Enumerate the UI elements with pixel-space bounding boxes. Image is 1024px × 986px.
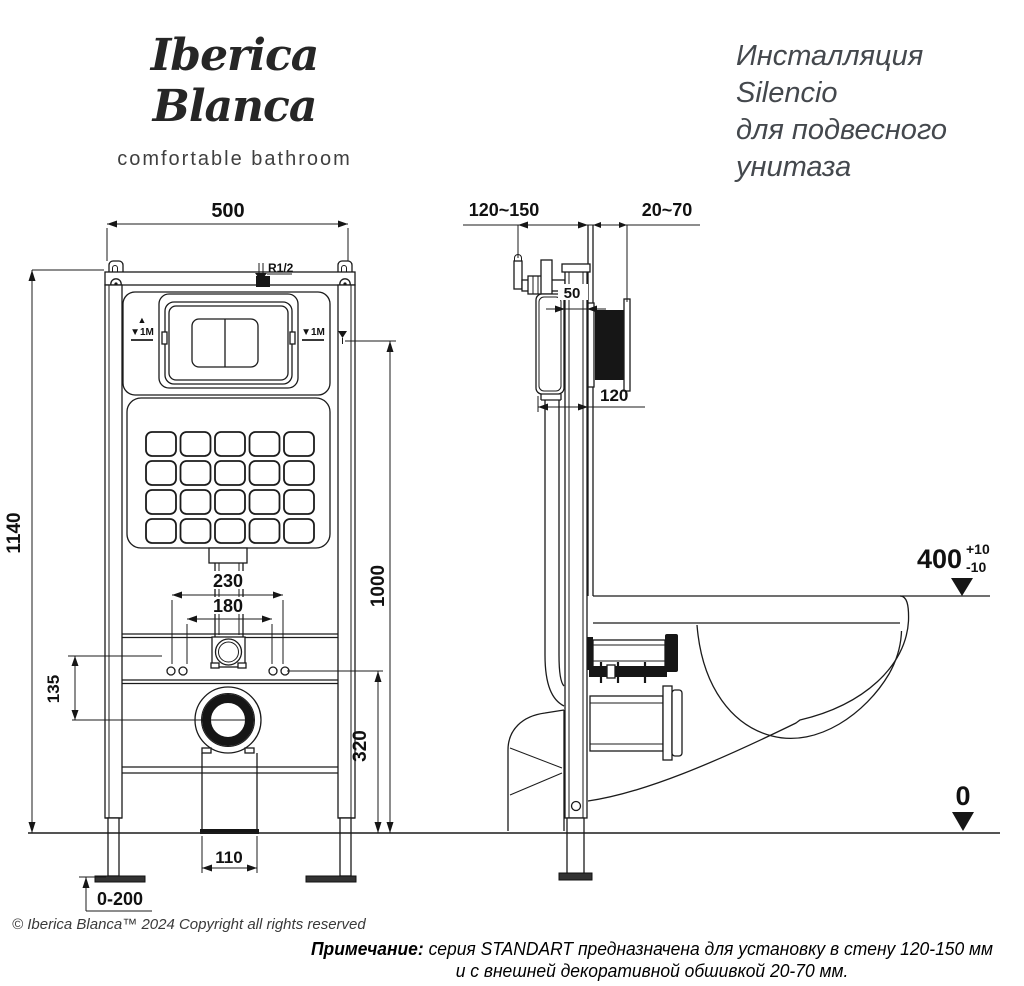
flush-connector: [590, 686, 682, 760]
note-text1: серия STANDART предназначена для установ…: [424, 939, 993, 959]
dim-drain-axis-height: 320: [350, 730, 371, 762]
dim-stud-centers: 180: [213, 596, 243, 616]
dim-front-width: 500: [211, 200, 244, 222]
dim-mark-height: 1000: [368, 565, 389, 607]
installation-note: Примечание: серия STANDART предназначена…: [291, 938, 1013, 982]
dim-pipe-centers: 230: [213, 571, 243, 591]
dim-drain-box-width: 110: [215, 848, 242, 867]
dim-foot-adjust: 0-200: [97, 889, 143, 909]
dim-rim-tol-plus: +10: [966, 541, 990, 557]
dim-front-height: 1140: [4, 512, 25, 553]
dim-frame-depth: 50: [564, 285, 581, 302]
level-up-icon: ▲: [138, 315, 147, 325]
level-mark-left: ▼1M: [130, 327, 154, 338]
product-title-line1: Инсталляция: [736, 38, 947, 75]
dim-niche-depth: 120~150: [469, 200, 540, 220]
product-title: Инсталляция Silencio для подвесного унит…: [736, 38, 947, 186]
inlet-thread-label: R1/2: [268, 261, 294, 275]
dim-stud-to-drain: 135: [44, 675, 63, 703]
note-text2: и с внешней декоративной обшивкой 20-70 …: [291, 960, 1013, 982]
product-title-line3: для подвесного: [736, 112, 947, 149]
dim-cistern-depth: 120: [600, 386, 628, 405]
dim-rim-height: 400: [917, 544, 962, 574]
spec-sheet-page: 500 1140 1000 320 135: [0, 0, 1024, 986]
note-line1: Примечание: серия STANDART предназначена…: [291, 938, 1013, 960]
dim-rim-tol-minus: -10: [966, 559, 986, 575]
brand-name: Iberica Blanca: [62, 30, 407, 132]
level-mark-right: ▼1M: [301, 327, 325, 338]
dim-cladding-depth: 20~70: [642, 200, 693, 220]
brand-tagline: comfortable bathroom: [62, 148, 407, 171]
copyright-text: © Iberica Blanca™ 2024 Copyright all rig…: [12, 916, 366, 933]
dim-floor-level: 0: [955, 781, 970, 811]
note-label: Примечание:: [311, 939, 424, 959]
product-title-line4: унитаза: [736, 149, 947, 186]
product-title-line2: Silencio: [736, 75, 947, 112]
mounting-studs: [587, 634, 678, 683]
brand-logo: Iberica Blanca comfortable bathroom: [62, 30, 407, 171]
